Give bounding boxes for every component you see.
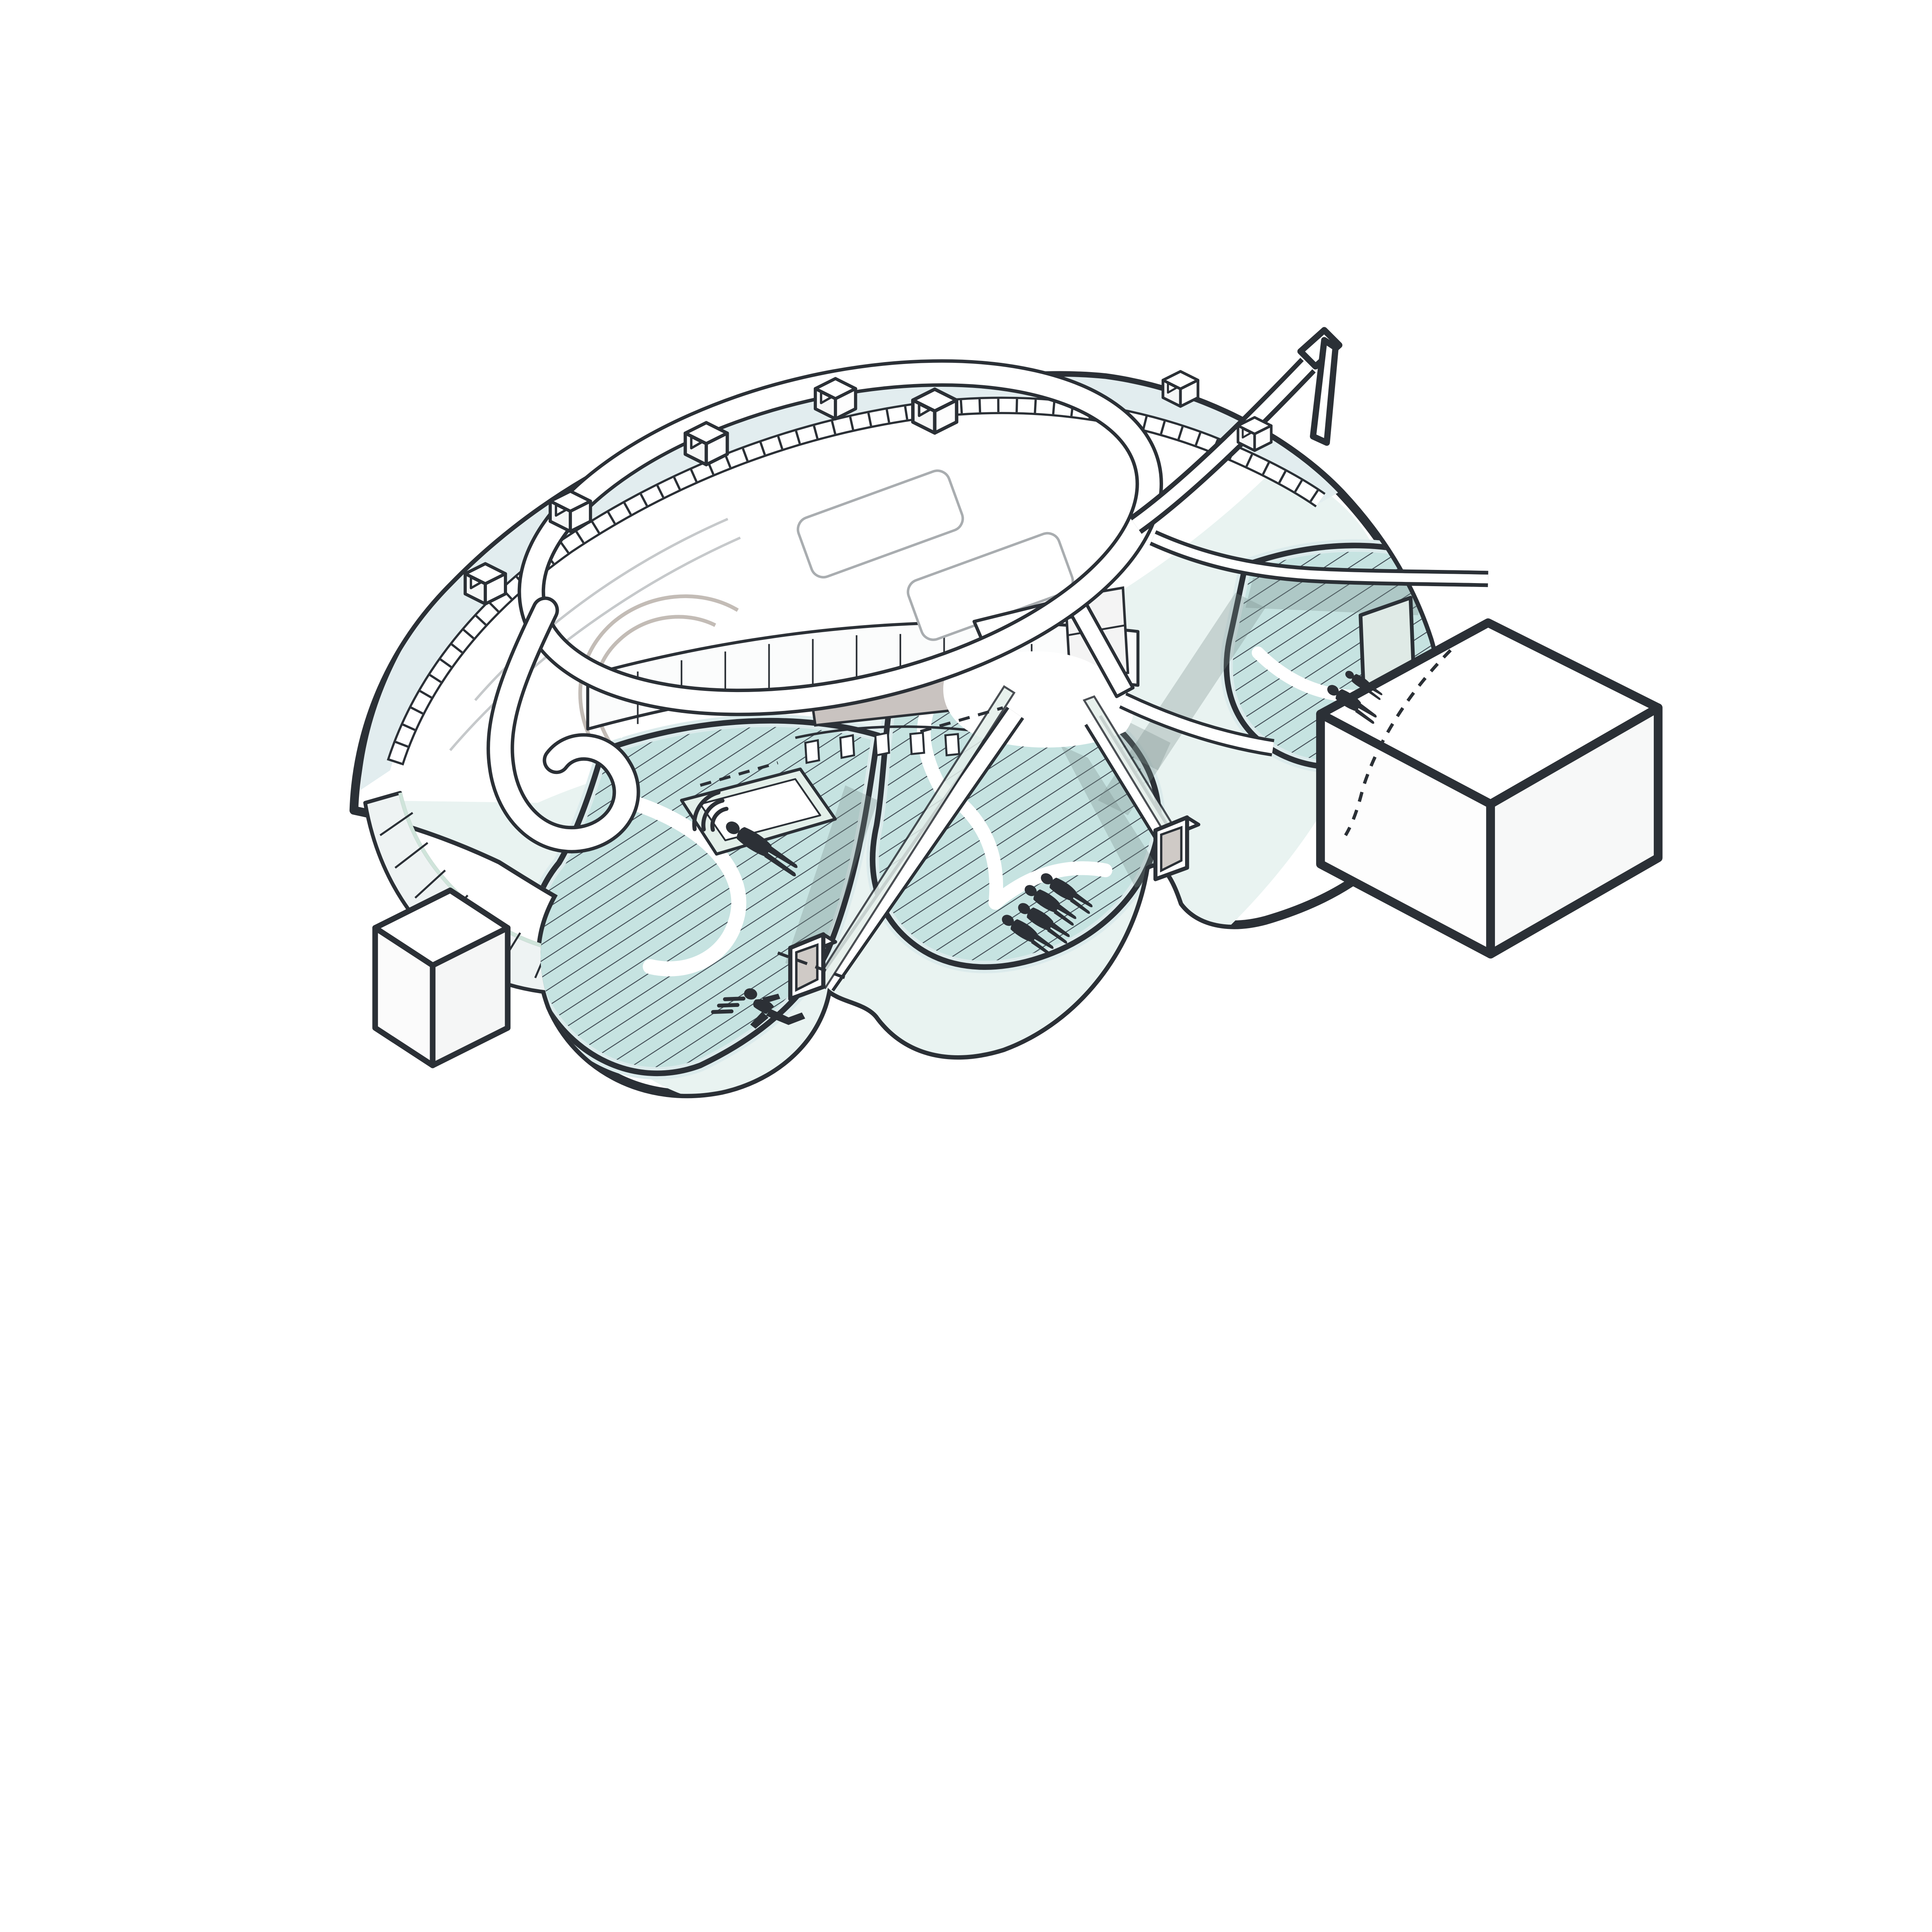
axonometric-diagram — [0, 0, 1932, 1500]
small-box-volume — [375, 890, 508, 1065]
diagram-canvas — [0, 0, 1932, 1500]
